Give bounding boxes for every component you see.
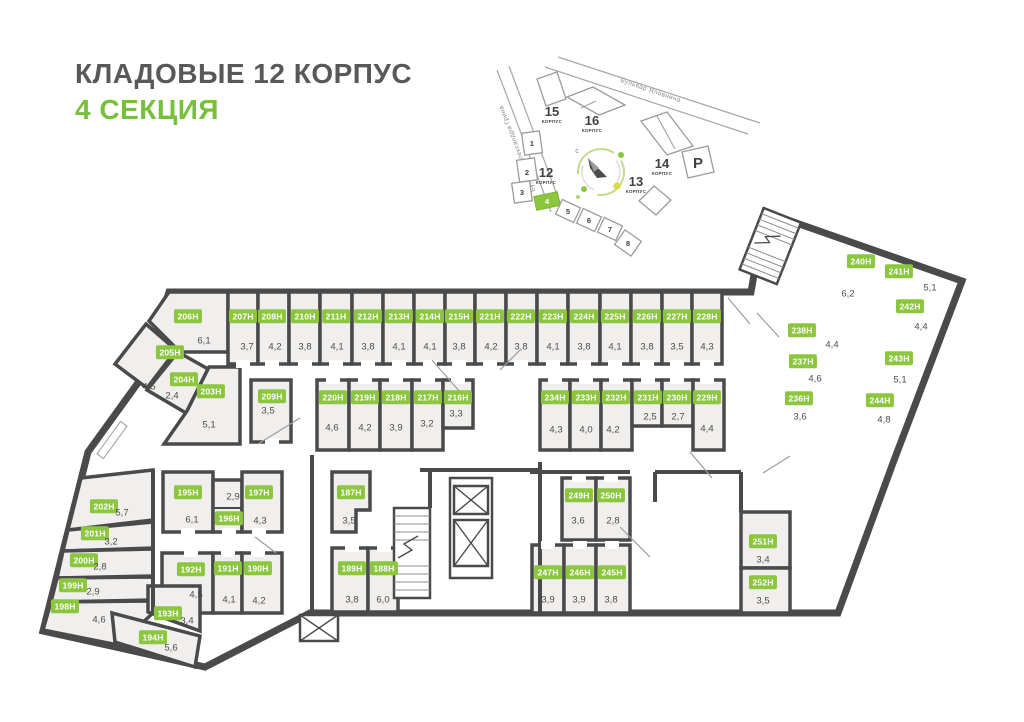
room-area-234Н: 4,3: [549, 425, 562, 435]
room-area-225Н: 4,1: [608, 342, 621, 352]
room-area-247Н: 3,9: [541, 595, 554, 605]
room-area-227Н: 3,5: [670, 342, 683, 352]
room-label-232Н[interactable]: 232Н: [602, 390, 630, 404]
room-area-188Н: 6,0: [376, 595, 389, 605]
room-label-237Н[interactable]: 237Н: [789, 354, 817, 368]
room-label-197Н[interactable]: 197Н: [245, 485, 273, 499]
room-label-199Н[interactable]: 199Н: [59, 578, 87, 592]
room-label-214Н[interactable]: 214Н: [416, 309, 444, 323]
room-label-216Н[interactable]: 216Н: [444, 390, 472, 404]
room-area-219Н: 4,2: [358, 423, 371, 433]
room-label-205Н[interactable]: 205Н: [156, 345, 184, 359]
room-label-250Н[interactable]: 250Н: [597, 488, 625, 502]
room-label-217Н[interactable]: 217Н: [414, 390, 442, 404]
room-area-205Н: 4,5: [142, 382, 155, 392]
room-label-241Н[interactable]: 241Н: [885, 264, 913, 278]
room-area-210Н: 3,8: [298, 342, 311, 352]
room-label-231Н[interactable]: 231Н: [634, 390, 662, 404]
room-area-194Н: 5,6: [164, 643, 177, 653]
room-label-251Н[interactable]: 251Н: [749, 534, 777, 548]
room-area-232Н: 4,2: [606, 425, 619, 435]
room-label-240Н[interactable]: 240Н: [847, 254, 875, 268]
room-area-216Н: 3,3: [449, 409, 462, 419]
room-area-209Н: 3,5: [261, 406, 274, 416]
room-area-212Н: 3,8: [361, 342, 374, 352]
room-label-206Н[interactable]: 206Н: [174, 309, 202, 323]
room-area-228Н: 4,3: [700, 342, 713, 352]
floorplan-page: КЛАДОВЫЕ 12 КОРПУС 4 СЕКЦИЯ Бульвар Алек…: [0, 0, 1024, 722]
room-label-224Н[interactable]: 224Н: [570, 309, 598, 323]
room-label-187Н[interactable]: 187Н: [337, 485, 365, 499]
room-area-224Н: 3,8: [577, 342, 590, 352]
room-label-210Н[interactable]: 210Н: [291, 309, 319, 323]
room-area-218Н: 3,9: [389, 423, 402, 433]
room-area-221Н: 4,2: [484, 342, 497, 352]
room-label-209Н[interactable]: 209Н: [258, 389, 286, 403]
room-area-190Н: 4,2: [252, 596, 265, 606]
room-area-191Н: 4,1: [222, 595, 235, 605]
room-label-213Н[interactable]: 213Н: [385, 309, 413, 323]
room-label-203Н[interactable]: 203Н: [197, 384, 225, 398]
room-area-193Н: 3,4: [180, 616, 193, 626]
room-area-201Н: 3,2: [104, 537, 117, 547]
room-label-196Н[interactable]: 196Н: [215, 511, 243, 525]
room-label-189Н[interactable]: 189Н: [338, 561, 366, 575]
room-area-215Н: 3,8: [452, 342, 465, 352]
room-area-197Н: 4,3: [253, 516, 266, 526]
room-area-229Н: 4,4: [700, 424, 713, 434]
room-label-234Н[interactable]: 234Н: [541, 390, 569, 404]
room-area-237Н: 4,6: [808, 374, 821, 384]
room-area-198Н: 4,6: [92, 615, 105, 625]
room-area-244Н: 4,8: [877, 415, 890, 425]
room-area-187Н: 3,5: [342, 516, 355, 526]
room-labels-layer: 206Н6,1207Н3,7208Н4,2210Н3,8211Н4,1212Н3…: [0, 0, 1024, 722]
room-area-252Н: 3,5: [756, 596, 769, 606]
room-label-228Н[interactable]: 228Н: [693, 309, 721, 323]
room-area-238Н: 4,4: [825, 340, 838, 350]
room-area-189Н: 3,8: [345, 595, 358, 605]
room-label-225Н[interactable]: 225Н: [601, 309, 629, 323]
room-label-229Н[interactable]: 229Н: [693, 390, 721, 404]
room-area-200Н: 2,8: [93, 562, 106, 572]
room-area-217Н: 3,2: [420, 419, 433, 429]
room-area-196Н: 2,9: [226, 492, 239, 502]
room-label-245Н[interactable]: 245Н: [598, 565, 626, 579]
room-label-227Н[interactable]: 227Н: [663, 309, 691, 323]
room-label-211Н[interactable]: 211Н: [322, 309, 350, 323]
room-label-243Н[interactable]: 243Н: [885, 351, 913, 365]
room-area-226Н: 3,8: [640, 342, 653, 352]
room-area-208Н: 4,2: [268, 342, 281, 352]
room-area-246Н: 3,9: [572, 595, 585, 605]
room-area-192Н: 4,5: [189, 590, 202, 600]
room-area-241Н: 5,1: [923, 283, 936, 293]
room-label-238Н[interactable]: 238Н: [788, 323, 816, 337]
room-area-211Н: 4,1: [330, 342, 343, 352]
room-label-244Н[interactable]: 244Н: [866, 393, 894, 407]
room-label-192Н[interactable]: 192Н: [177, 562, 205, 576]
room-label-247Н[interactable]: 247Н: [534, 565, 562, 579]
room-label-219Н[interactable]: 219Н: [351, 390, 379, 404]
room-label-230Н[interactable]: 230Н: [663, 390, 691, 404]
room-label-204Н[interactable]: 204Н: [170, 372, 198, 386]
room-area-213Н: 4,1: [392, 342, 405, 352]
room-label-194Н[interactable]: 194Н: [139, 630, 167, 644]
room-area-243Н: 5,1: [893, 375, 906, 385]
room-label-193Н[interactable]: 193Н: [154, 606, 182, 620]
room-area-195Н: 6,1: [185, 515, 198, 525]
room-area-199Н: 2,9: [86, 587, 99, 597]
room-area-250Н: 2,8: [606, 516, 619, 526]
room-label-249Н[interactable]: 249Н: [565, 488, 593, 502]
room-label-218Н[interactable]: 218Н: [382, 390, 410, 404]
room-label-236Н[interactable]: 236Н: [785, 391, 813, 405]
room-label-202Н[interactable]: 202Н: [90, 499, 118, 513]
room-area-207Н: 3,7: [240, 342, 253, 352]
room-label-208Н[interactable]: 208Н: [258, 309, 286, 323]
room-area-214Н: 4,1: [423, 342, 436, 352]
room-area-231Н: 2,5: [643, 412, 656, 422]
room-area-202Н: 5,7: [115, 508, 128, 518]
room-label-198Н[interactable]: 198Н: [51, 599, 79, 613]
room-label-220Н[interactable]: 220Н: [319, 390, 347, 404]
room-area-245Н: 3,8: [604, 595, 617, 605]
room-label-246Н[interactable]: 246Н: [566, 565, 594, 579]
room-area-251Н: 3,4: [756, 555, 769, 565]
room-label-188Н[interactable]: 188Н: [370, 561, 398, 575]
room-area-230Н: 2,7: [671, 412, 684, 422]
room-area-236Н: 3,6: [793, 412, 806, 422]
room-label-215Н[interactable]: 215Н: [445, 309, 473, 323]
room-label-226Н[interactable]: 226Н: [633, 309, 661, 323]
room-label-190Н[interactable]: 190Н: [244, 561, 272, 575]
room-label-221Н[interactable]: 221Н: [476, 309, 504, 323]
room-label-242Н[interactable]: 242Н: [896, 299, 924, 313]
room-area-220Н: 4,6: [325, 423, 338, 433]
room-area-222Н: 3,8: [514, 342, 527, 352]
room-label-212Н[interactable]: 212Н: [354, 309, 382, 323]
room-label-222Н[interactable]: 222Н: [507, 309, 535, 323]
room-area-204Н: 2,4: [165, 391, 178, 401]
room-area-240Н: 6,2: [841, 289, 854, 299]
room-area-203Н: 5,1: [202, 420, 215, 430]
room-label-195Н[interactable]: 195Н: [174, 485, 202, 499]
room-label-207Н[interactable]: 207Н: [229, 309, 257, 323]
room-area-233Н: 4,0: [579, 425, 592, 435]
room-label-252Н[interactable]: 252Н: [749, 575, 777, 589]
room-label-233Н[interactable]: 233Н: [572, 390, 600, 404]
room-area-249Н: 3,6: [571, 516, 584, 526]
room-area-206Н: 6,1: [197, 336, 210, 346]
room-area-242Н: 4,4: [914, 322, 927, 332]
room-label-191Н[interactable]: 191Н: [214, 561, 242, 575]
room-area-223Н: 4,1: [546, 342, 559, 352]
room-label-223Н[interactable]: 223Н: [539, 309, 567, 323]
